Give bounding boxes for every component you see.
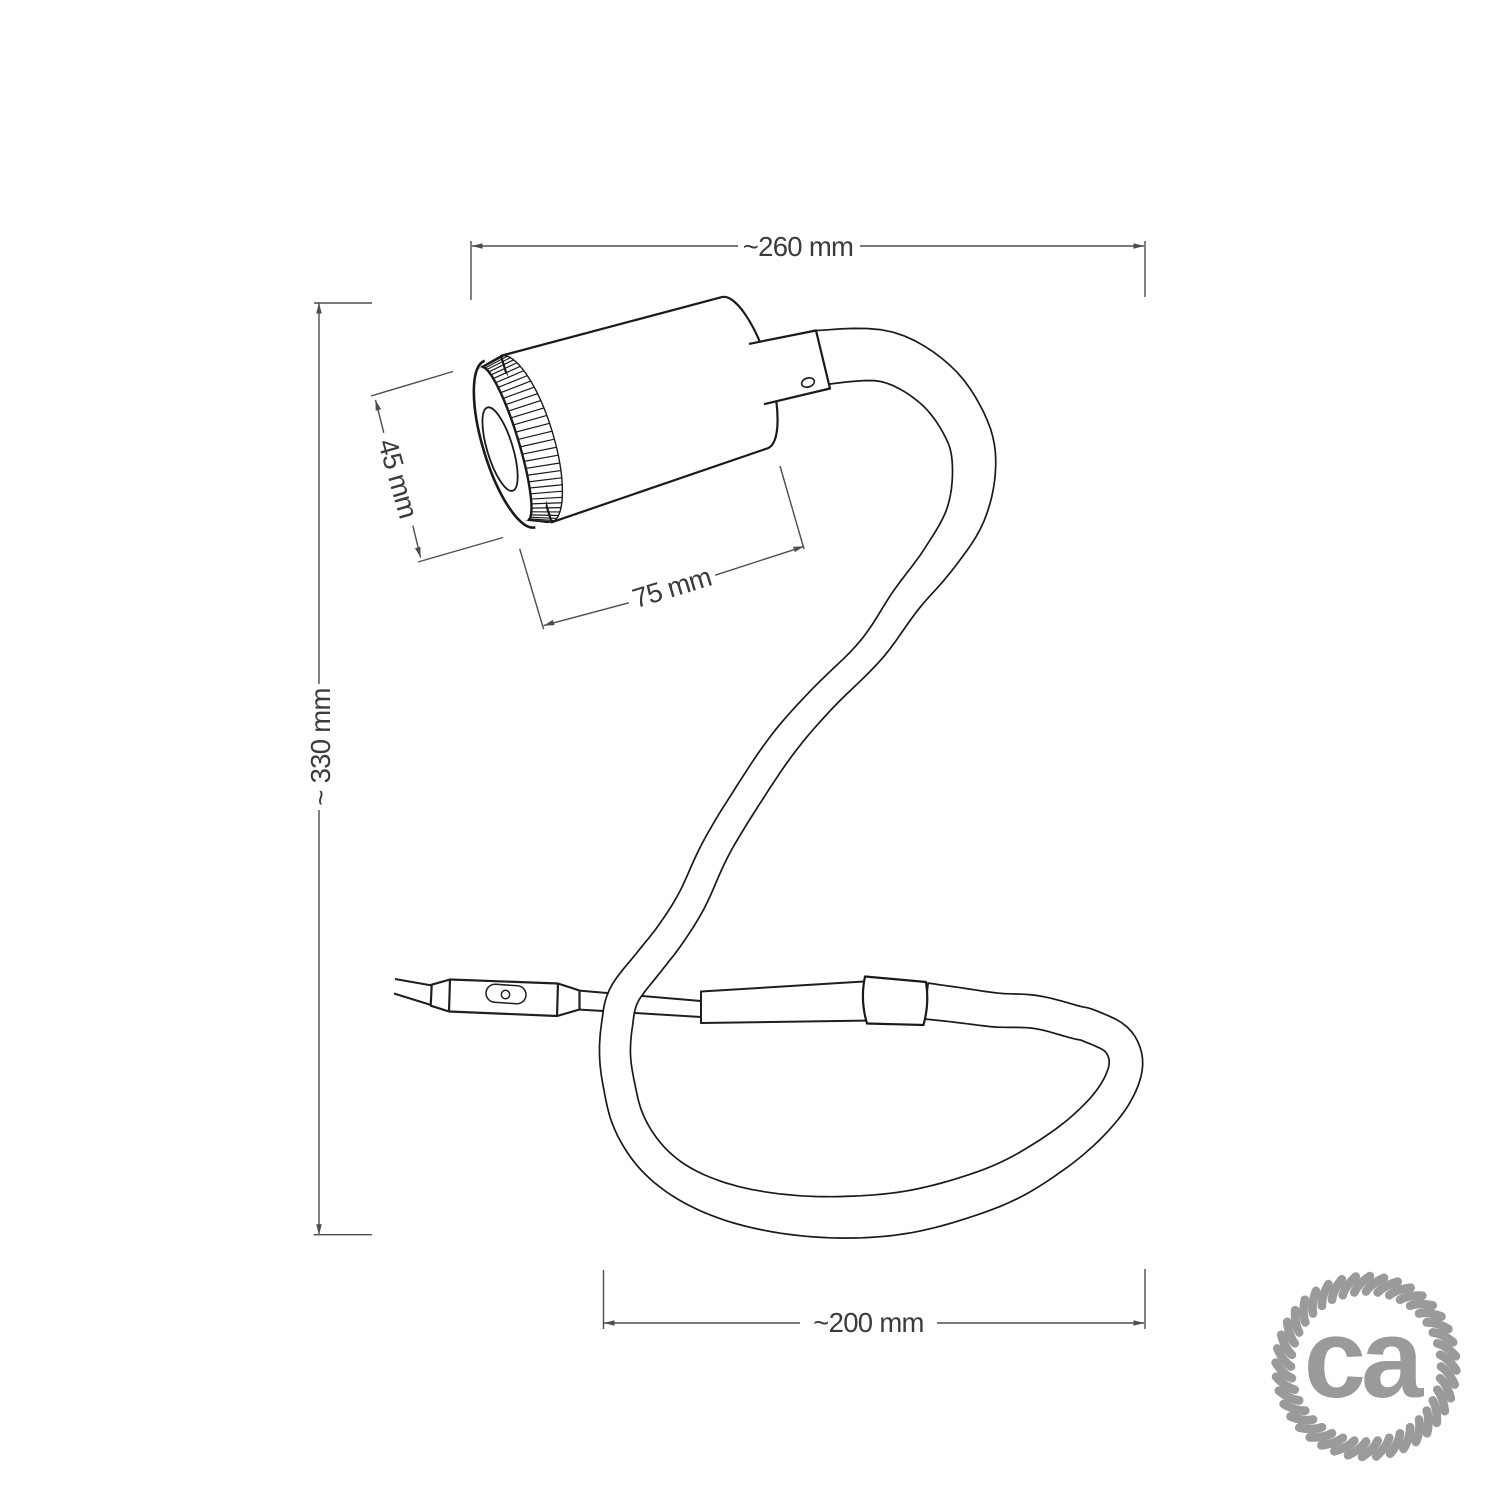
svg-text:ca: ca [1304,1296,1424,1421]
svg-text:~260 mm: ~260 mm [743,231,854,262]
svg-text:~200 mm: ~200 mm [813,1307,924,1338]
svg-text:~ 330 mm: ~ 330 mm [305,688,336,805]
